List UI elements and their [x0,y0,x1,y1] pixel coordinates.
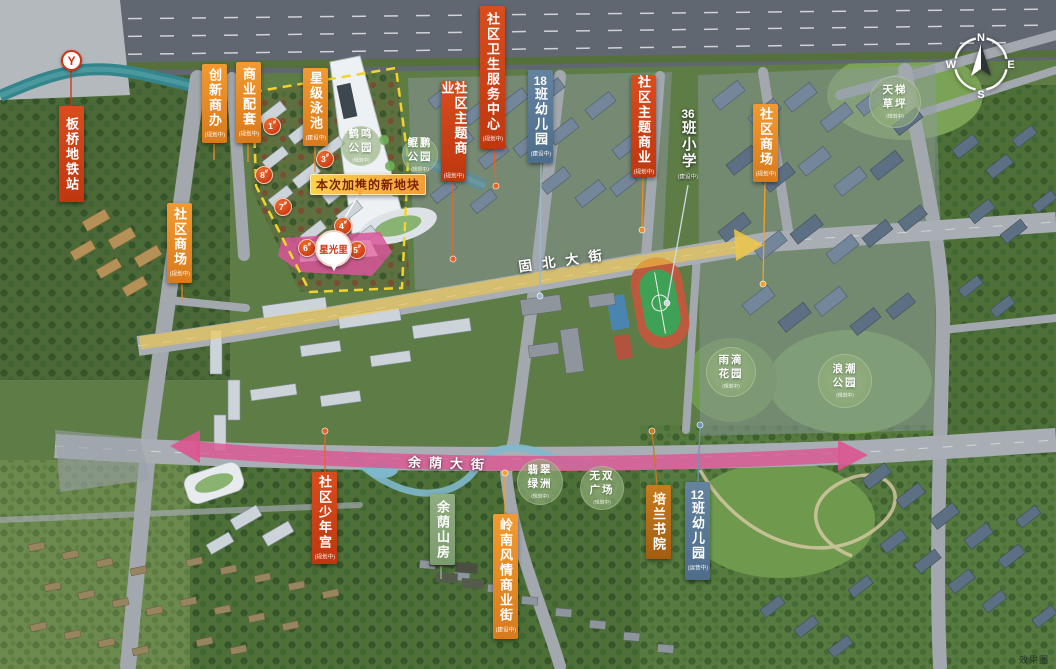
poi-label-status: (规划中) [238,130,259,138]
project-name: 星光里 [319,242,348,256]
poi-label-youeryuan-18ban: 18班幼儿园(建设中) [528,70,553,163]
connector-dot [639,227,645,233]
connector-dot [649,428,655,434]
building-number-badge-1: 1# [263,117,281,135]
poi-label-status: (运营中) [687,564,708,572]
connector-dot [697,422,703,428]
poi-label-youeryuan-12ban: 12班幼儿园(运营中) [685,482,710,580]
poi-label-status: (规划中) [204,131,225,139]
compass-needle-light [971,44,981,76]
poi-label-text: 商业配套 [242,67,255,127]
poi-label-status: (建设中) [495,626,516,634]
connector-line [698,425,700,482]
poi-label-banqiao-metro-station: 板桥地铁站 [59,106,84,202]
building-number-badge-3: 3# [316,150,334,168]
poi-label-text: 余荫山房 [436,500,449,560]
compass-south: S [977,89,984,101]
poi-label-status: (规划中) [633,168,654,176]
poi-label-xiaoxue-36ban: 36班小学(建设中) [675,106,700,184]
watermark: 效果图 [1019,653,1049,666]
poi-label-text: 板桥地铁站 [65,117,78,192]
badge-hash: # [284,201,287,207]
compass-west: W [946,59,957,71]
poi-label-shequ-shangchang-west: 社区商场(规划中) [167,203,192,283]
poi-label-peilan-shuyuan: 培兰书院 [646,485,671,559]
connector-line [763,183,765,284]
badge-hash: # [265,169,268,175]
compass-east: E [1007,59,1014,71]
poi-label-text: 社区少年宫 [318,475,331,550]
connector-dot [450,256,456,262]
poi-label-shequ-zhuti-shangye-west: 社区主题商业(规划中) [441,81,466,181]
poi-label-status: (规划中) [314,553,335,561]
poi-label-text: 社区主题商业 [637,75,650,165]
connector-dot [322,428,328,434]
compass: N S W E [941,24,1021,104]
metro-glyph: Y [67,55,75,67]
badge-hash: # [326,153,329,159]
poi-label-shequ-zhuti-shangye-east: 社区主题商业(规划中) [631,75,656,177]
poi-label-text: 社区卫生服务中心 [486,12,499,132]
poi-label-chuangxin-shangban: 创新商办(规划中) [202,64,227,143]
connector-dot [760,281,766,287]
poi-label-xingji-yongchi: 星级泳池(建设中) [303,68,328,146]
compass-north: N [977,32,985,44]
poi-label-text: 创新商办 [208,68,221,128]
connector-dot [537,293,543,299]
badge-hash: # [358,244,361,250]
new-plot-banner: 本次加推的新地块 [310,174,426,195]
poi-label-status: (规划中) [169,270,190,278]
masterplan-map: .b1{fill:#ccd3d9;stroke:#818d98;stroke-w… [0,0,1056,669]
poi-label-text: 社区商场 [173,207,186,267]
poi-label-status: (规划中) [482,135,503,143]
poi-label-text: 岭南风情商业街 [499,518,512,623]
poi-label-text: 36班小学 [680,108,695,170]
connector-line [494,150,496,186]
connector-dot [664,300,670,306]
poi-label-text: 18班幼儿园 [534,75,547,147]
poi-label-shequ-weisheng-fuwu-zhongxin: 社区卫生服务中心(规划中) [480,6,505,149]
connector-dot [502,470,508,476]
poi-label-text: 社区商场 [759,107,772,167]
poi-label-text: 培兰书院 [652,492,665,552]
poi-label-shangye-peitao: 商业配套(规划中) [236,62,261,143]
project-pin: 星光里 [315,230,352,267]
poi-label-status: (规划中) [443,172,464,180]
poi-label-status: (建设中) [305,134,326,142]
poi-label-text: 星级泳池 [309,71,322,131]
connector-dot [493,183,499,189]
poi-label-status: (建设中) [677,173,698,181]
metro-logo-icon: Y [61,50,82,71]
building-number-badge-7: 7# [274,198,292,216]
badge-hash: # [308,242,311,248]
poi-label-shequ-shaoniangong: 社区少年宫(规划中) [312,472,337,564]
poi-label-yuyin-shanfang: 余荫山房 [430,494,455,565]
connector-line [642,178,643,230]
badge-hash: # [344,220,347,226]
poi-label-lingnan-fengqing-shangyejie: 岭南风情商业街(建设中) [493,514,518,639]
connector-line [652,431,657,485]
poi-label-shequ-shangchang-east: 社区商场(规划中) [753,104,778,182]
poi-label-status: (规划中) [755,170,776,178]
poi-label-status: (建设中) [530,150,551,158]
poi-label-text: 社区主题商业 [441,81,467,169]
poi-label-text: 12班幼儿园 [691,489,704,561]
connector-line [667,185,688,303]
compass-needle-dark [981,44,991,76]
building-number-badge-8: 8# [255,166,273,184]
badge-hash: # [273,120,276,126]
connector-line [540,164,541,296]
new-plot-banner-text: 本次加推的新地块 [316,176,420,193]
building-number-badge-6: 6# [298,239,316,257]
